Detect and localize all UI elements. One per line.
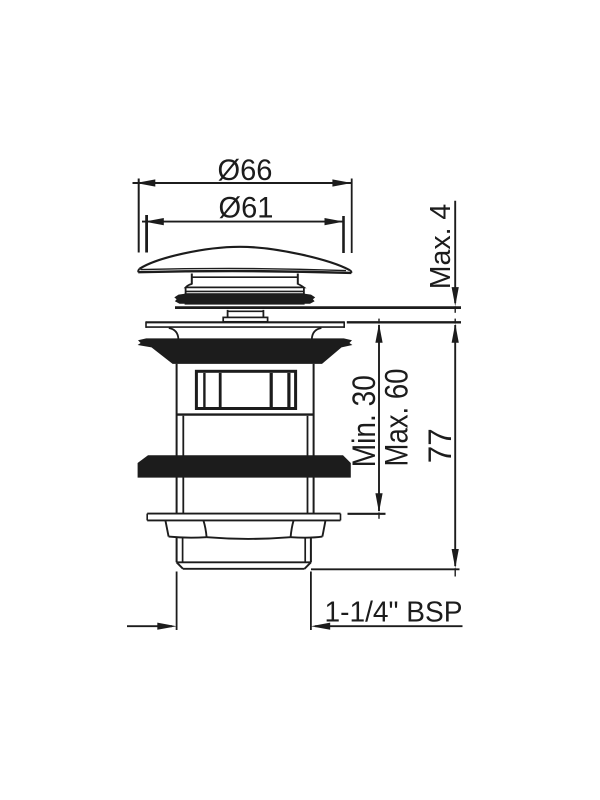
svg-text:77: 77 bbox=[422, 428, 458, 463]
svg-text:Max. 4: Max. 4 bbox=[425, 204, 457, 290]
svg-text:1-1/4" BSP: 1-1/4" BSP bbox=[325, 597, 463, 629]
svg-text:Max. 60: Max. 60 bbox=[378, 369, 414, 467]
svg-text:Ø61: Ø61 bbox=[219, 192, 274, 225]
svg-text:Min. 30: Min. 30 bbox=[346, 375, 382, 467]
